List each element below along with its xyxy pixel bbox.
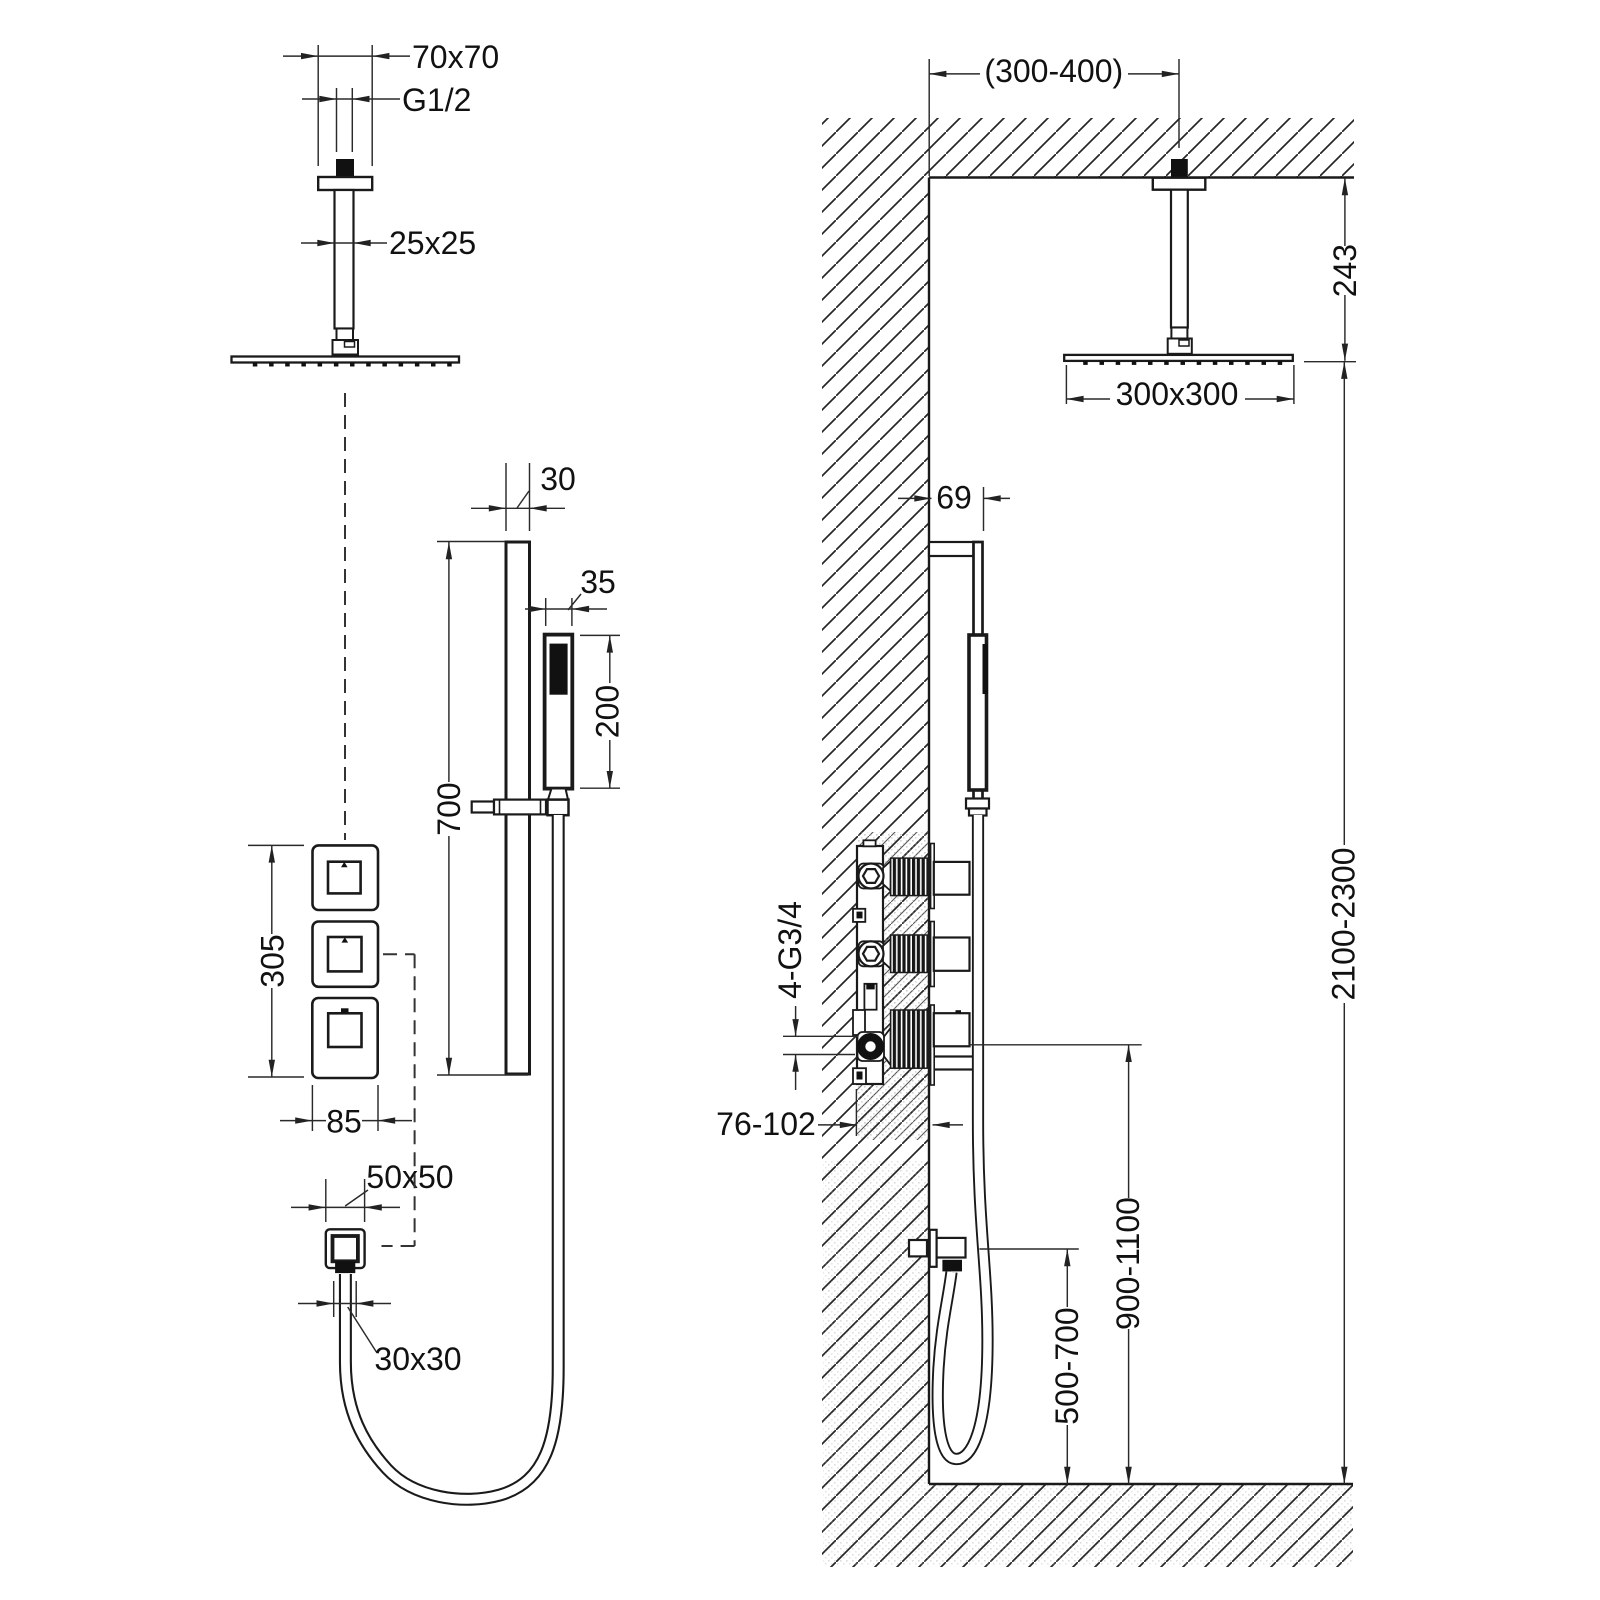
svg-text:4-G3/4: 4-G3/4 bbox=[772, 901, 808, 999]
svg-text:85: 85 bbox=[326, 1104, 362, 1140]
svg-text:(300-400): (300-400) bbox=[984, 53, 1123, 89]
svg-text:30: 30 bbox=[540, 461, 576, 497]
svg-text:69: 69 bbox=[936, 480, 972, 516]
svg-text:G1/2: G1/2 bbox=[402, 82, 471, 118]
svg-text:2100-2300: 2100-2300 bbox=[1326, 847, 1362, 1000]
svg-text:900-1100: 900-1100 bbox=[1110, 1197, 1146, 1330]
svg-text:25x25: 25x25 bbox=[389, 225, 476, 261]
svg-text:76-102: 76-102 bbox=[716, 1106, 816, 1142]
svg-text:50x50: 50x50 bbox=[366, 1159, 453, 1195]
svg-text:70x70: 70x70 bbox=[412, 39, 499, 75]
svg-text:700: 700 bbox=[431, 782, 467, 835]
svg-text:200: 200 bbox=[590, 685, 626, 738]
svg-text:500-700: 500-700 bbox=[1049, 1307, 1085, 1424]
svg-text:243: 243 bbox=[1327, 244, 1363, 297]
svg-text:305: 305 bbox=[255, 934, 291, 987]
svg-text:30x30: 30x30 bbox=[374, 1341, 461, 1377]
svg-text:300x300: 300x300 bbox=[1116, 376, 1239, 412]
svg-text:35: 35 bbox=[580, 564, 616, 600]
